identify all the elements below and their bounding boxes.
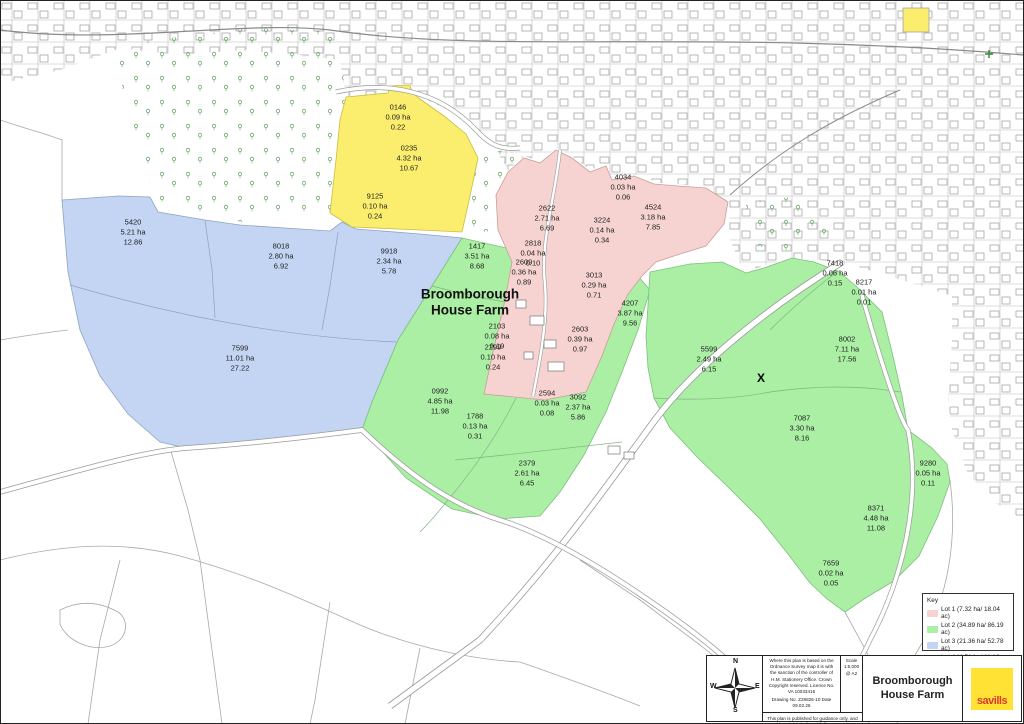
savills-logo-mark: savills — [971, 668, 1013, 710]
compass-n: N — [733, 658, 738, 665]
compass-w: W — [710, 683, 717, 690]
compass-s: S — [733, 707, 738, 714]
key-legend: Key Lot 1 (7.32 ha/ 18.04 ac) Lot 2 (34.… — [922, 593, 1014, 651]
compass-rose: N E S W — [707, 656, 763, 721]
farm-name-label: Broomborough House Farm — [421, 286, 519, 317]
title-block: N E S W Where this plan is based on the … — [706, 655, 1022, 722]
savills-logo: savills — [963, 656, 1021, 721]
urban-area-right — [948, 296, 1024, 520]
woodland — [115, 28, 345, 222]
key-item: Lot 2 (34.89 ha/ 86.19 ac) — [927, 622, 1009, 636]
x-mark: X — [757, 371, 765, 385]
lot2-green-east — [646, 258, 950, 612]
key-color-swatch — [927, 626, 938, 633]
key-color-swatch — [927, 642, 938, 649]
scale-note: Scale 1:5,000 @ A2 — [841, 656, 862, 712]
os-disclaimer-text: Where this plan is based on the Ordnance… — [769, 658, 835, 694]
key-item-label: Lot 3 (21.36 ha/ 52.78 ac) — [941, 638, 1009, 652]
compass-e: E — [755, 683, 760, 690]
os-disclaimer: Where this plan is based on the Ordnance… — [763, 656, 841, 712]
key-item: Lot 1 (7.32 ha/ 18.04 ac) — [927, 606, 1009, 620]
map-inset-box — [903, 8, 929, 32]
key-item-label: Lot 2 (34.89 ha/ 86.19 ac) — [941, 622, 1009, 636]
drawing-number: Drawing No. Z28826-10 Date 09.02.26 — [766, 697, 837, 709]
key-item: Lot 3 (21.36 ha/ 52.78 ac) — [927, 638, 1009, 652]
guidance-note: This plan is published for guidance only… — [763, 713, 862, 724]
key-item-label: Lot 1 (7.32 ha/ 18.04 ac) — [941, 606, 1009, 620]
plan-title: Broomborough House Farm — [863, 656, 963, 721]
key-heading: Key — [927, 597, 1009, 604]
base-map — [0, 0, 1024, 724]
map-canvas: 5420 5.21 ha 12.86 8018 2.80 ha 6.92 991… — [0, 0, 1024, 724]
key-color-swatch — [927, 610, 938, 617]
